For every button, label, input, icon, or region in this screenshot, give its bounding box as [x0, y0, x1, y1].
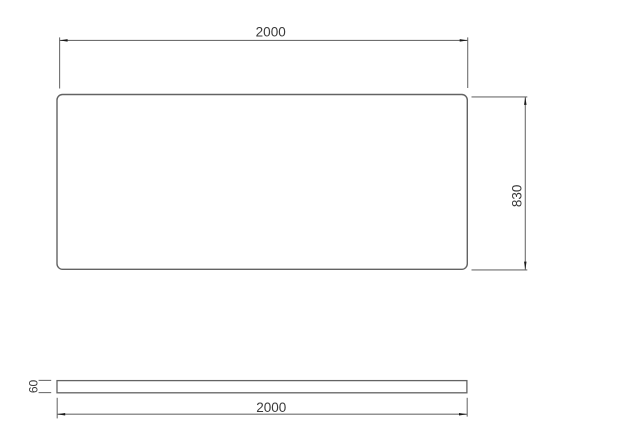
svg-text:2000: 2000: [256, 25, 286, 40]
svg-text:60: 60: [27, 380, 41, 394]
svg-text:830: 830: [510, 185, 525, 208]
svg-text:2000: 2000: [256, 400, 286, 415]
